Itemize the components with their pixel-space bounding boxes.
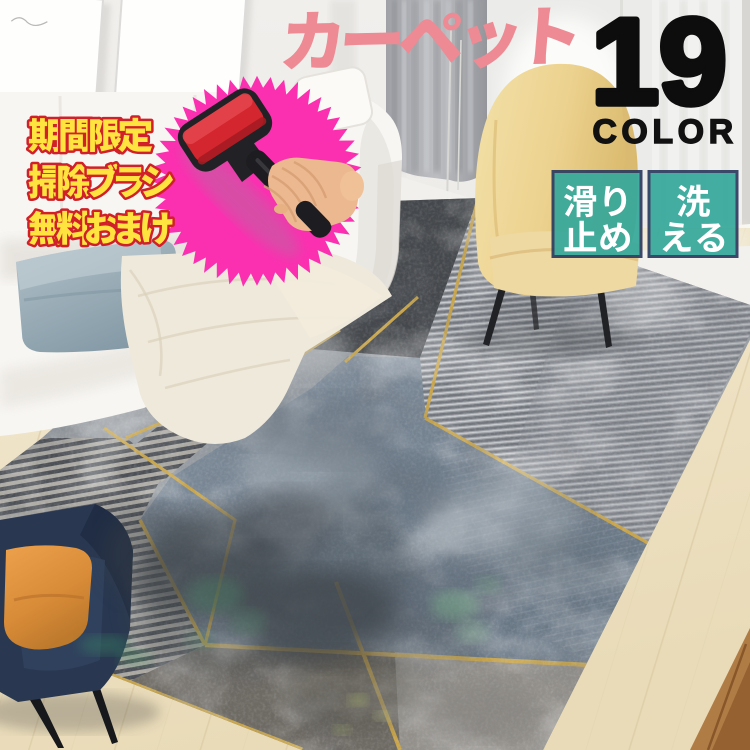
- svg-text:COLOR: COLOR: [592, 113, 737, 151]
- svg-text:19: 19: [591, 0, 727, 130]
